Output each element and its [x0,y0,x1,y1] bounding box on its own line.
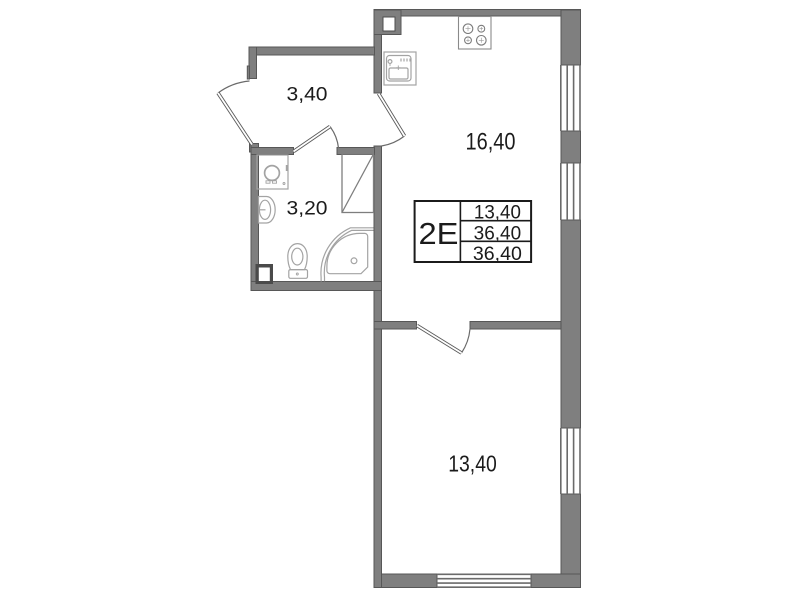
svg-text:36,40: 36,40 [473,244,522,265]
svg-text:3,20: 3,20 [287,198,328,220]
svg-text:16,40: 16,40 [466,128,516,155]
svg-text:3,40: 3,40 [287,83,328,105]
svg-text:13,40: 13,40 [448,451,497,477]
svg-text:36,40: 36,40 [474,224,522,245]
svg-text:13,40: 13,40 [474,203,521,224]
svg-text:2Е: 2Е [419,217,459,251]
